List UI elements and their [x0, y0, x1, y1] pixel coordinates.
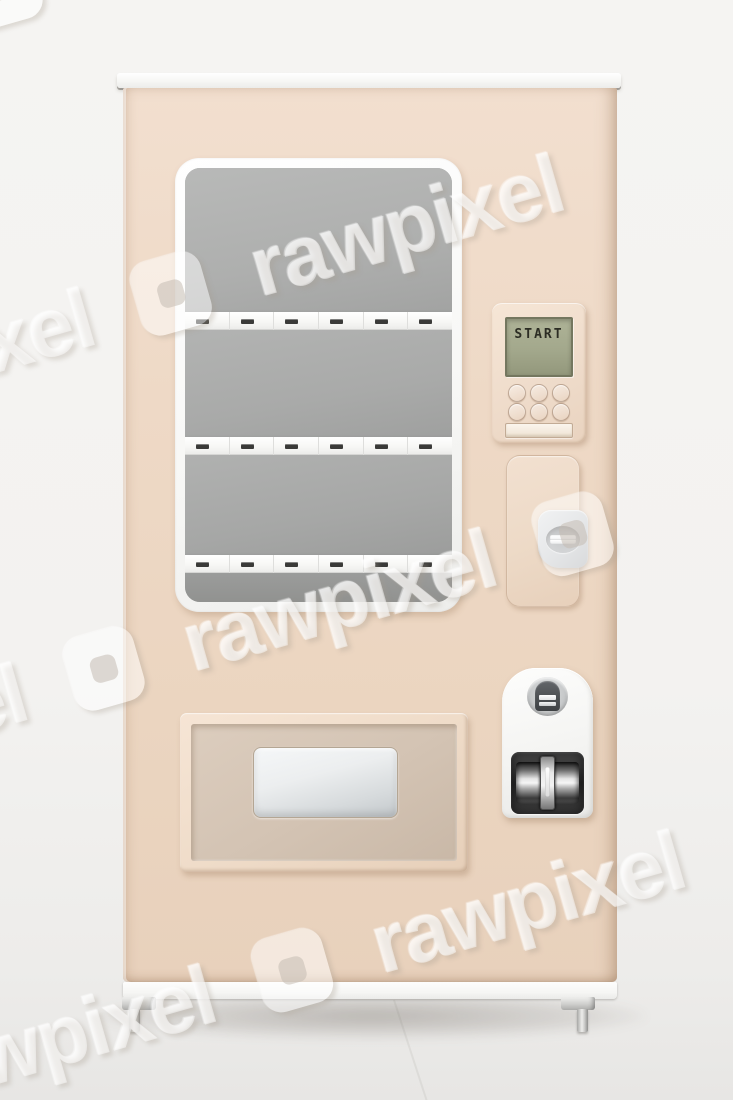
- rawpixel-logo-icon: [0, 0, 47, 32]
- shelf-slot: [185, 437, 230, 455]
- machine-base: [123, 982, 617, 999]
- watermark-text: rawpixel: [0, 645, 37, 826]
- price-tag-slot: [375, 319, 388, 324]
- keyhole-slot: [550, 535, 576, 544]
- coin-slot-bar: [539, 695, 556, 700]
- price-tag-slot: [330, 319, 343, 324]
- shelf-slot: [319, 312, 364, 330]
- price-tag-slot: [241, 444, 254, 449]
- coin-slot-bar: [539, 702, 556, 706]
- shelf-row: [185, 312, 452, 330]
- price-tag-slot: [196, 562, 209, 567]
- shelf-slot: [319, 437, 364, 455]
- shelf-slot: [274, 312, 319, 330]
- shelf-slot: [230, 555, 275, 573]
- window-floor: [185, 573, 452, 602]
- shelf-slot: [274, 437, 319, 455]
- keypad-button[interactable]: [552, 403, 570, 421]
- shelf-slot: [274, 555, 319, 573]
- shelf-bay: [185, 455, 452, 555]
- coin-slot[interactable]: [527, 677, 568, 716]
- price-tag-slot: [285, 444, 298, 449]
- lock-latch[interactable]: [538, 510, 588, 568]
- logo-hole: [88, 652, 120, 684]
- price-tag-slot: [285, 319, 298, 324]
- shelf-slot: [319, 555, 364, 573]
- watermark-text: rawpixel: [69, 0, 404, 9]
- product-window: [175, 158, 462, 612]
- price-tag-slot: [419, 444, 432, 449]
- keypad-button[interactable]: [552, 384, 570, 402]
- coin-return[interactable]: [511, 752, 584, 814]
- lcd-screen: START: [505, 317, 573, 377]
- price-tag-slot: [196, 444, 209, 449]
- machine-foot-right: [561, 997, 595, 1033]
- machine-foot-left: [122, 997, 156, 1033]
- coin-slot-opening: [535, 681, 560, 711]
- price-tag-slot: [419, 562, 432, 567]
- foot-leg: [129, 1009, 140, 1032]
- shelf-slot: [364, 437, 409, 455]
- price-tag-slot: [419, 319, 432, 324]
- keypad-button[interactable]: [530, 384, 548, 402]
- watermark-text: rawpixel: [0, 270, 104, 451]
- keypad: [504, 383, 574, 421]
- shelf-slot: [185, 555, 230, 573]
- lcd-text: START: [514, 327, 563, 342]
- foot-leg: [577, 1009, 588, 1032]
- price-tag-slot: [196, 319, 209, 324]
- knob-slot: [545, 767, 550, 797]
- shelf-slot: [408, 312, 452, 330]
- logo-hole: [0, 0, 18, 2]
- price-tag-slot: [241, 319, 254, 324]
- shelf-slot: [364, 312, 409, 330]
- shelf-row: [185, 555, 452, 573]
- handle-recess: [546, 526, 580, 553]
- shelf-slot: [230, 312, 275, 330]
- window-interior: [185, 168, 452, 602]
- shelf-bay: [185, 168, 452, 312]
- coin-panel: [502, 668, 593, 818]
- keypad-button[interactable]: [508, 403, 526, 421]
- shelf-row: [185, 437, 452, 455]
- shelf-bay: [185, 330, 452, 437]
- card-slot[interactable]: [505, 423, 573, 438]
- shelf-slot: [408, 555, 452, 573]
- dispenser-tray: [180, 713, 468, 872]
- price-tag-slot: [241, 562, 254, 567]
- shelf-slot: [364, 555, 409, 573]
- price-tag-slot: [285, 562, 298, 567]
- price-tag-slot: [330, 444, 343, 449]
- shelf-slot: [230, 437, 275, 455]
- dispenser-flap[interactable]: [253, 747, 398, 818]
- price-tag-slot: [375, 562, 388, 567]
- machine-top: [117, 73, 621, 88]
- shelf-slot: [408, 437, 452, 455]
- coin-return-knob[interactable]: [540, 756, 555, 810]
- scene: START: [0, 0, 733, 1100]
- keypad-button[interactable]: [508, 384, 526, 402]
- shelf-slot: [185, 312, 230, 330]
- dispenser-tray-recess: [191, 724, 457, 861]
- price-tag-slot: [330, 562, 343, 567]
- display-panel: START: [492, 303, 586, 443]
- price-tag-slot: [375, 444, 388, 449]
- keypad-button[interactable]: [530, 403, 548, 421]
